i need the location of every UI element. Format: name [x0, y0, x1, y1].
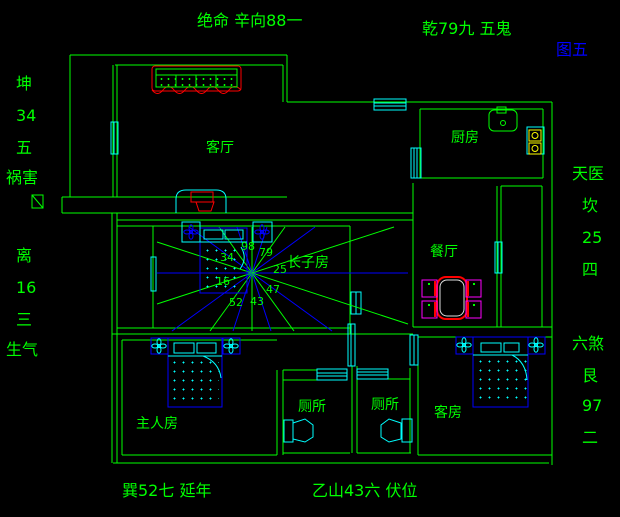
annotation-left: 坤: [16, 76, 32, 92]
annotation-right: 天医: [572, 166, 604, 182]
annotation-top-right: 乾79九 五鬼: [422, 21, 511, 37]
compass-number: 43: [250, 296, 264, 307]
compass-number: 98: [241, 241, 255, 252]
annotation-right: 坎: [582, 198, 598, 214]
room-label-toilet-right: 厕所: [371, 398, 399, 412]
toilet-left-fixture: [284, 419, 313, 442]
annotation-left: 祸害: [6, 170, 38, 186]
room-label-eldest-son: 长子房: [287, 256, 329, 270]
figure-number-label: 图五: [556, 42, 588, 58]
annotation-bottom-left: 巽52七 延年: [122, 483, 211, 499]
annotation-left: 16: [16, 280, 36, 296]
kitchen-stove: [527, 127, 544, 154]
annotation-top-center: 绝命 辛向88一: [197, 13, 302, 29]
annotation-left: 五: [16, 140, 32, 156]
compass-rays: [157, 227, 408, 331]
annotation-right: 六煞: [572, 336, 604, 352]
toilet-right-fixture: [381, 419, 412, 442]
planter-dots: [158, 76, 235, 87]
annotation-bottom-right: 乙山43六 伏位: [312, 483, 417, 499]
annotation-left: 三: [16, 312, 32, 328]
annotation-right: 97: [582, 398, 602, 414]
annotation-left: 34: [16, 108, 36, 124]
room-label-kitchen: 厨房: [451, 131, 479, 145]
annotation-left: 生气: [6, 342, 38, 358]
annotation-right: 艮: [582, 368, 598, 384]
room-label-master: 主人房: [136, 417, 178, 431]
compass-number: 25: [273, 264, 287, 275]
room-label-guest: 客房: [434, 406, 462, 420]
annotation-right: 四: [582, 262, 598, 278]
compass-number: 16: [216, 276, 230, 287]
dining-table-set: [422, 277, 481, 319]
guest-bed-dots: [476, 357, 527, 405]
compass-number: 34: [220, 252, 234, 263]
compass-number: 47: [266, 284, 280, 295]
tv-cabinet: [176, 190, 226, 213]
dining-chairs: [422, 280, 481, 318]
master-bed-dots: [170, 358, 219, 405]
cad-floorplan-screenshot: 绝命 辛向88一 乾79九 五鬼 图五 坤 34 五 祸害 离 16 三 生气 …: [0, 0, 620, 517]
room-label-dining: 餐厅: [430, 245, 458, 259]
annotation-right: 二: [582, 430, 598, 446]
room-label-living: 客厅: [206, 141, 234, 155]
annotation-right: 25: [582, 230, 602, 246]
kitchen-sink: [489, 107, 517, 131]
annotation-left: 离: [16, 248, 32, 264]
compass-number: 52: [229, 297, 243, 308]
compass-number: 79: [259, 247, 273, 258]
room-label-toilet-left: 厕所: [298, 400, 326, 414]
